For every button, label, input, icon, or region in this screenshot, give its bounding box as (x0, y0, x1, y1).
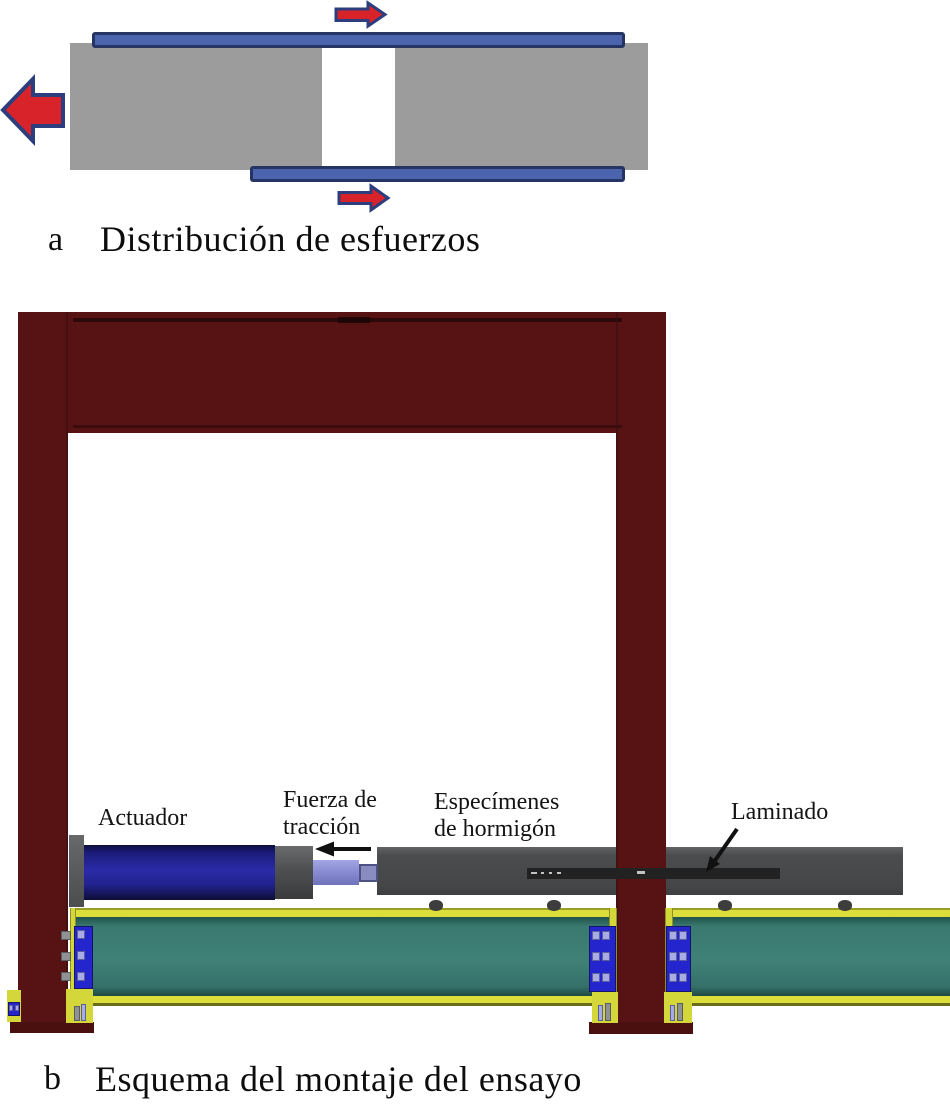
frame-weld-seam-bottom (73, 425, 622, 428)
bolt-icon (605, 1003, 611, 1021)
label-specimens-line1: Especímenes (434, 789, 559, 816)
frame-top-beam (18, 312, 666, 433)
bolt-icon (61, 972, 71, 981)
bolt-icon (670, 1005, 675, 1021)
bonded-laminate-strip (527, 868, 780, 879)
bolt-icon (77, 972, 85, 981)
actuator-reaction-plate (69, 835, 84, 907)
crack-gap (322, 43, 395, 170)
base-beam-top-flange (70, 908, 950, 917)
bolt-icon (77, 951, 85, 960)
bolt-icon (679, 931, 687, 940)
panel-b-caption: Esquema del montaje del ensayo (95, 1058, 582, 1100)
bolt-icon (602, 931, 610, 940)
specimen-support-bolt (429, 900, 443, 911)
laminate-gauge-mark (549, 872, 552, 874)
panel-a-caption: Distribución de esfuerzos (100, 218, 480, 260)
laminate-gauge-mark (541, 872, 544, 874)
specimen-support-bolt (838, 900, 852, 911)
laminate-gauge-mark (637, 871, 645, 874)
bolt-icon (592, 952, 600, 961)
frame-right-column (616, 312, 666, 1022)
specimen-support-bolt (718, 900, 732, 911)
bolt-icon (77, 930, 85, 939)
bolt-icon (669, 931, 677, 940)
bolt-icon (592, 931, 600, 940)
label-actuator: Actuador (98, 805, 187, 832)
bolt-icon (679, 973, 687, 982)
base-beam-bottom-flange (70, 996, 950, 1006)
panel-a-stress-diagram (0, 0, 950, 215)
panel-b-letter: b (44, 1060, 61, 1098)
frp-laminate-strip-top (92, 32, 625, 48)
bolt-icon (61, 952, 71, 961)
panel-a-letter: a (48, 221, 63, 259)
actuator-cylinder (84, 845, 275, 900)
frame-left-column (18, 312, 68, 1022)
base-beam-web (70, 917, 950, 996)
bolt-icon (602, 952, 610, 961)
label-traction-line1: Fuerza de (283, 787, 377, 814)
bolt-icon (592, 973, 600, 982)
bolt-icon (669, 952, 677, 961)
label-specimens-line2: de hormigón (434, 816, 556, 843)
bolt-icon (61, 931, 71, 940)
frame-weld-seam-top-notch (338, 317, 370, 323)
frp-laminate-strip-bottom (250, 166, 625, 182)
figure-canvas: a Distribución de esfuerzos (0, 0, 950, 1108)
bolt-icon (669, 973, 677, 982)
frame-left-column-baseplate (10, 1022, 94, 1033)
bolt-icon (81, 1004, 86, 1021)
bolt-icon (602, 973, 610, 982)
laminate-gauge-mark (531, 872, 537, 874)
label-traction-line2: tracción (283, 814, 360, 841)
specimen-support-bolt (547, 900, 561, 911)
actuator-coupling-nut (359, 864, 378, 882)
label-laminate: Laminado (731, 799, 828, 826)
traction-force-arrowhead-icon (315, 842, 334, 857)
actuator-piston-rod (313, 860, 359, 885)
bolt-icon (15, 1005, 19, 1011)
bolt-icon (9, 1005, 13, 1011)
laminate-gauge-mark (557, 872, 561, 874)
frame-right-column-baseplate (589, 1022, 693, 1034)
bolt-icon (679, 952, 687, 961)
bolt-icon (598, 1005, 603, 1021)
actuator-coupler (275, 846, 313, 899)
bolt-icon (677, 1003, 683, 1021)
bolt-icon (74, 1006, 80, 1021)
